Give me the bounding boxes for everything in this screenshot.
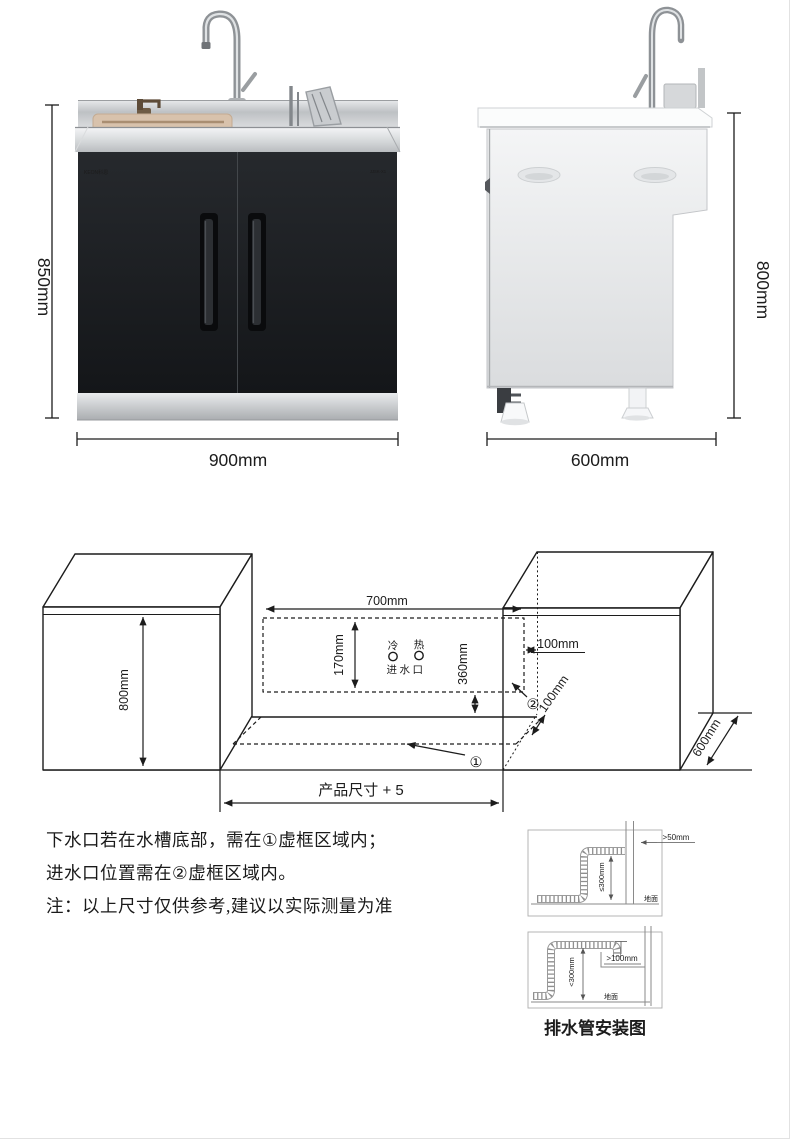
note-line-3: 注：以上尺寸仅供参考,建议以实际测量为准 — [46, 896, 516, 916]
cold-inlet-icon — [389, 652, 397, 660]
side-counter-rim — [478, 108, 712, 127]
side-gap-label: 100mm — [537, 637, 579, 651]
front-height-label: 850mm — [34, 258, 54, 316]
front-width-label: 900mm — [209, 450, 267, 470]
note-line-1: 下水口若在水槽底部，需在①虚框区域内； — [46, 830, 516, 850]
drain-bottom-ground-label: 地面 — [604, 992, 618, 1001]
front-width-dimension — [77, 432, 398, 446]
install-cabinet-height-label: 800mm — [117, 669, 131, 711]
drain-caption: 排水管安装图 — [544, 1018, 646, 1038]
diagram-canvas: KEON科恩 JJSK-X1 850mm 900mm — [0, 0, 790, 1139]
drain-diagram-bottom: >100mm <300mm 地面 — [528, 926, 662, 1008]
door-handle-right-icon — [248, 213, 266, 331]
side-depth-label: 600mm — [571, 450, 629, 470]
right-cabinet-box — [503, 552, 713, 770]
front-cabinet: KEON科恩 JJSK-X1 — [78, 152, 397, 393]
drain-top-clearance-label: >50mm — [663, 833, 690, 842]
cold-label: 冷 — [388, 639, 399, 652]
front-view: KEON科恩 JJSK-X1 850mm 900mm — [34, 14, 400, 470]
install-notes: 下水口若在水槽底部，需在①虚框区域内； 进水口位置需在②虚框区域内。 注：以上尺… — [46, 830, 516, 929]
cutout-size-label: 产品尺寸 + 5 — [318, 782, 403, 799]
side-faucet-icon — [635, 10, 705, 110]
zone2-marker: ② — [527, 697, 540, 713]
install-diagram: 800mm 700mm 170mm 360mm 100mm 100mm 600m… — [43, 552, 752, 812]
drain-diagram-top: ≤300mm >50mm 地面 — [528, 821, 695, 916]
front-faucet-icon — [202, 14, 256, 112]
side-panel — [485, 129, 707, 388]
note-line-2: 进水口位置需在②虚框区域内。 — [46, 863, 516, 883]
side-depth-dimension — [487, 432, 716, 446]
side-height-label: 800mm — [753, 261, 773, 319]
hot-inlet-icon — [415, 651, 423, 659]
side-view: 800mm 600mm — [478, 10, 773, 470]
water-inlet-marks: 冷 热 进水口 — [387, 638, 426, 676]
inlet-label: 进水口 — [387, 664, 426, 676]
model-label: JJSK-X1 — [370, 169, 387, 174]
drain-bottom-height-label: <300mm — [567, 957, 576, 986]
install-top-width-label: 700mm — [366, 594, 408, 608]
brand-label: KEON科恩 — [84, 169, 108, 176]
product-dimension-sheet: KEON科恩 JJSK-X1 850mm 900mm — [0, 0, 790, 1139]
side-legs — [497, 388, 653, 425]
drying-rack-icon — [291, 86, 341, 126]
drain-top-height-label: ≤300mm — [597, 862, 606, 891]
hot-label: 热 — [414, 638, 425, 651]
door-handle-left-icon — [200, 213, 218, 331]
inlet-zone-height-label: 170mm — [332, 634, 346, 676]
front-counter-rim — [75, 127, 400, 152]
drain-zone-dashed — [233, 717, 543, 744]
side-height-dimension — [727, 113, 741, 418]
left-cabinet-box — [43, 554, 252, 770]
drain-bottom-clearance-label: >100mm — [606, 954, 638, 963]
inlet-drop-label: 360mm — [456, 643, 470, 685]
zone1-marker: ① — [470, 755, 483, 771]
front-base — [77, 393, 398, 420]
drain-top-ground-label: 地面 — [644, 894, 658, 903]
